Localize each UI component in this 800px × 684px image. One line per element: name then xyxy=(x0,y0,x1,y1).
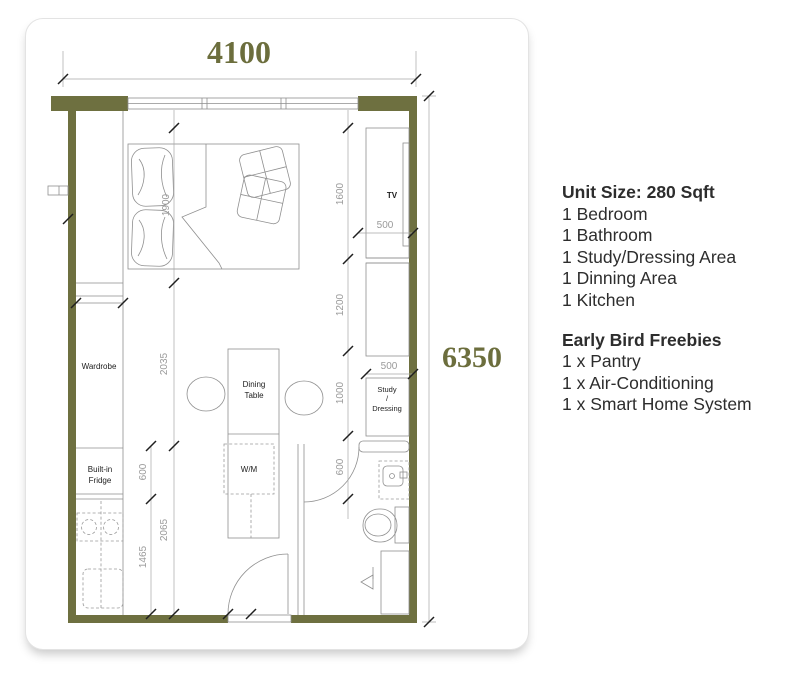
dim-tv-depth-label: 500 xyxy=(377,220,394,231)
tv-icon xyxy=(403,143,409,246)
dimension-width-label: 4100 xyxy=(207,34,271,70)
washing-machine: W/M xyxy=(224,444,274,538)
study-desk: Study / Dressing xyxy=(359,378,409,452)
cabinet xyxy=(366,263,409,356)
wardrobe-label: Wardrobe xyxy=(82,362,117,371)
unit-size: Unit Size: 280 Sqft xyxy=(562,182,752,204)
fridge-label-1: Built-in xyxy=(88,465,112,474)
feature-kitchen: 1 Kitchen xyxy=(562,290,752,312)
chair xyxy=(285,381,323,415)
feature-dining: 1 Dinning Area xyxy=(562,268,752,290)
dim-line-right: 1600 1200 1000 600 xyxy=(335,110,353,519)
dining-table-label-2: Table xyxy=(244,391,264,400)
dim-mid: 1200 xyxy=(335,293,346,316)
left-cabinet-strip: Wardrobe Built-in Fridge xyxy=(71,111,128,615)
feature-bedroom: 1 Bedroom xyxy=(562,204,752,226)
dim-line-left-2: 600 1465 xyxy=(138,441,156,619)
dim-bed: 1900 xyxy=(161,193,172,216)
study-label-2: / xyxy=(386,394,389,403)
dim-left-low: 2065 xyxy=(159,518,170,541)
bathroom-wall xyxy=(298,444,304,615)
feature-bathroom: 1 Bathroom xyxy=(562,225,752,247)
kitchen-counter xyxy=(76,494,123,608)
entry-door xyxy=(223,554,291,622)
tv-console: TV xyxy=(366,128,409,263)
shower-head-icon xyxy=(361,575,373,589)
study-label-1: Study xyxy=(377,385,396,394)
toilet-icon xyxy=(363,507,409,543)
floor-plan-card: 4100 6350 xyxy=(25,18,529,650)
dimension-height-label: 6350 xyxy=(442,341,502,374)
blanket-fold xyxy=(182,144,222,269)
pillow xyxy=(131,209,174,266)
walls xyxy=(51,96,417,623)
dim-bath: 600 xyxy=(335,458,346,475)
wardrobe: Wardrobe xyxy=(76,362,123,448)
freebies-title: Early Bird Freebies xyxy=(562,330,752,352)
dining-table-label-1: Dining xyxy=(243,380,266,389)
dim-study-depth-label: 500 xyxy=(381,361,398,372)
dimension-height: 6350 xyxy=(422,91,502,627)
dining-area: Dining Table W/M xyxy=(187,349,323,538)
unit-info-panel: Unit Size: 280 Sqft 1 Bedroom 1 Bathroom… xyxy=(562,182,752,416)
decor-pillow xyxy=(236,174,287,225)
dim-wm: 600 xyxy=(138,463,149,480)
dim-tv-depth: 500 xyxy=(353,220,418,238)
chair xyxy=(187,377,225,411)
freebie-smart-home: 1 x Smart Home System xyxy=(562,394,752,416)
basin xyxy=(379,461,409,499)
bathroom-door-arc xyxy=(304,447,359,502)
wm-label: W/M xyxy=(241,465,258,474)
window xyxy=(128,98,358,109)
tv-label: TV xyxy=(387,191,398,200)
dim-kitchen: 1465 xyxy=(138,545,149,568)
bathroom xyxy=(298,444,409,615)
fridge-label-2: Fridge xyxy=(89,476,112,485)
bed xyxy=(128,144,299,269)
decor-pillow xyxy=(238,145,291,198)
dim-study: 1000 xyxy=(335,381,346,404)
floor-plan-svg: 4100 6350 xyxy=(26,19,528,649)
freebie-aircond: 1 x Air-Conditioning xyxy=(562,373,752,395)
freebie-pantry: 1 x Pantry xyxy=(562,351,752,373)
feature-study-dressing: 1 Study/Dressing Area xyxy=(562,247,752,269)
dimension-width: 4100 xyxy=(58,34,421,87)
built-in-fridge: Built-in Fridge xyxy=(88,465,112,485)
dim-tv: 1600 xyxy=(335,182,346,205)
study-label-3: Dressing xyxy=(372,404,402,413)
kitchen-sink xyxy=(83,569,123,608)
dim-line-left-1: 1900 2035 2065 xyxy=(159,110,179,619)
shower xyxy=(361,551,409,614)
dim-left-mid: 2035 xyxy=(159,352,170,375)
